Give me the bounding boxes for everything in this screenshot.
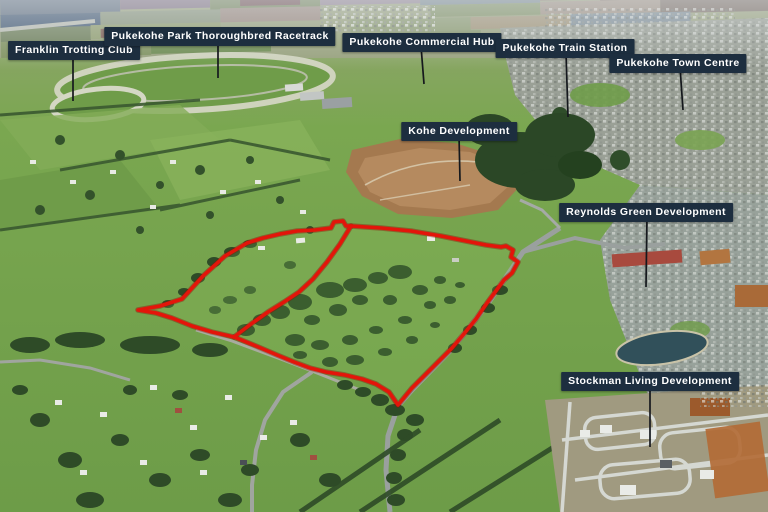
- map-label-pukekohe-town-centre: Pukekohe Town Centre: [609, 54, 746, 73]
- map-label-kohe-development: Kohe Development: [401, 122, 517, 141]
- aerial-view: Franklin Trotting Club Pukekohe Park Tho…: [0, 0, 768, 512]
- map-label-stockman-living-development: Stockman Living Development: [561, 372, 739, 391]
- map-label-pukekohe-park-thoroughbred-racetrack: Pukekohe Park Thoroughbred Racetrack: [104, 27, 335, 46]
- aerial-photo-scenery: [0, 0, 768, 512]
- map-label-pukekohe-commercial-hub: Pukekohe Commercial Hub: [342, 33, 501, 52]
- map-label-reynolds-green-development: Reynolds Green Development: [559, 203, 733, 222]
